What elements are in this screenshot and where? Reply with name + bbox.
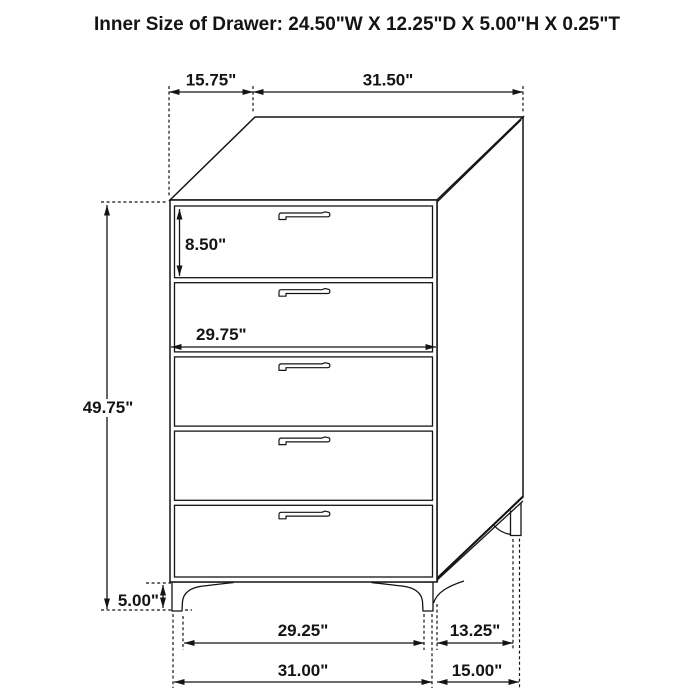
label-top-width: 31.50"	[363, 71, 414, 90]
chest-drawing	[170, 117, 523, 611]
label-front-feet-span: 29.25"	[278, 621, 329, 640]
label-overall-height: 49.75"	[83, 398, 134, 417]
chest-back-leg-curve	[494, 526, 511, 535]
chest-front-left-leg	[172, 582, 233, 611]
chest-right-leg-side-curve	[434, 581, 465, 603]
label-drawer-front-height: 8.50"	[185, 235, 226, 254]
chest-front-face	[170, 200, 437, 582]
label-overall-width: 31.00"	[278, 661, 329, 680]
chest-front-right-leg	[372, 582, 433, 611]
label-side-feet-gap: 13.25"	[450, 621, 501, 640]
diagram-title: Inner Size of Drawer: 24.50"W X 12.25"D …	[94, 14, 620, 35]
label-drawer-inner-width: 29.75"	[196, 325, 247, 344]
chest-dimension-diagram: Inner Size of Drawer: 24.50"W X 12.25"D …	[0, 0, 700, 700]
label-overall-depth: 15.00"	[452, 661, 503, 680]
label-leg-height: 5.00"	[118, 591, 159, 610]
label-top-depth: 15.75"	[186, 71, 237, 90]
